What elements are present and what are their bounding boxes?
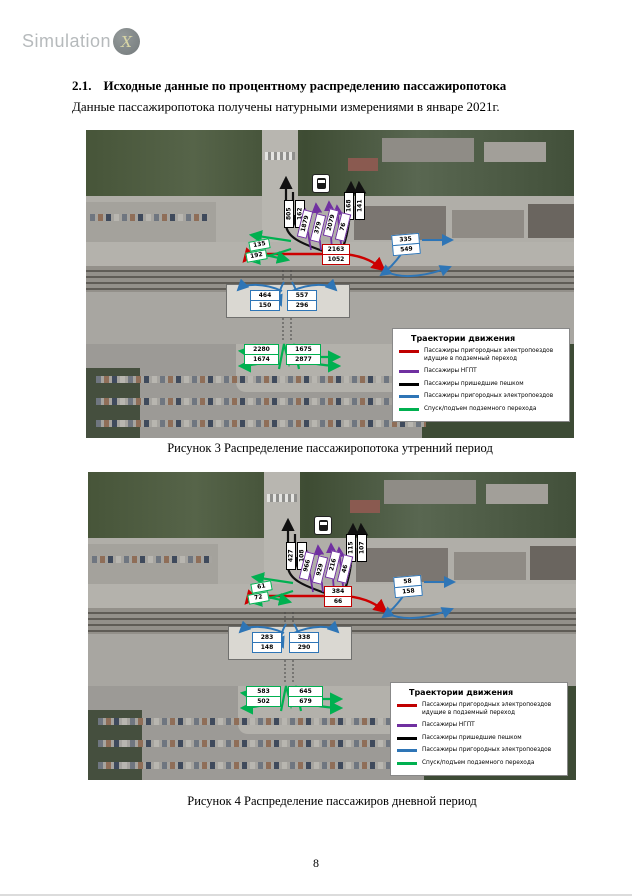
map-parking-upper <box>88 544 218 584</box>
map-building <box>484 142 546 162</box>
trajectory-swatch-blue <box>399 395 419 398</box>
legend: Траектории движения Пассажиры пригородны… <box>390 682 568 776</box>
legend-title: Траектории движения <box>409 688 561 697</box>
aerial-map-morning: 805 162 168 141 1879 379 2079 76 2163 10… <box>86 130 574 438</box>
intro-paragraph: Данные пассажиропотока получены натурным… <box>72 99 582 115</box>
label-pedestrian-west-1: 427 <box>286 542 296 570</box>
label-platform-east: 338 290 <box>289 632 319 653</box>
legend-item: Пассажиры пришедшие пешком <box>397 735 561 743</box>
legend-item: Спуск/подъем подземного перехода <box>399 406 563 414</box>
legend-item: Пассажиры пригородных электропоездов <box>399 393 563 401</box>
map-building <box>348 158 378 171</box>
map-parked-cars <box>92 556 212 563</box>
section-title: Исходные данные по процентному распредел… <box>104 78 507 93</box>
trajectory-swatch-green <box>399 408 419 411</box>
section-number: 2.1. <box>72 78 92 93</box>
trajectory-swatch-black <box>399 383 419 386</box>
section-heading: 2.1.Исходные данные по процентному распр… <box>72 78 577 94</box>
trajectory-swatch-purple <box>399 370 419 373</box>
label-pedestrian-east-2: 141 <box>355 192 365 220</box>
trajectory-swatch-red <box>399 350 419 353</box>
label-platform-east: 557 296 <box>287 290 317 311</box>
map-building <box>350 500 380 513</box>
trajectory-swatch-blue <box>397 749 417 752</box>
map-building <box>452 210 524 238</box>
label-pedestrian-west-1: 805 <box>284 200 294 228</box>
map-building <box>454 552 526 580</box>
bus-icon <box>312 174 330 193</box>
legend-item: Пассажиры пришедшие пешком <box>399 381 563 389</box>
map-building <box>528 204 574 238</box>
caption-figure-3: Рисунок 3 Распределение пассажиропотока … <box>86 441 574 456</box>
label-to-underpass: 384 66 <box>324 586 352 607</box>
map-parked-cars <box>90 214 210 221</box>
label-underpass-west: 2280 1674 <box>244 344 279 365</box>
figure-day: 427 108 115 107 966 929 216 46 384 66 61… <box>88 472 576 780</box>
document-page: Simulation X 2.1.Исходные данные по проц… <box>0 0 632 896</box>
map-crosswalk <box>265 152 295 160</box>
map-crosswalk <box>267 494 297 502</box>
label-platform-west: 283 148 <box>252 632 282 653</box>
label-exit-east: 58 158 <box>393 575 423 598</box>
map-building <box>382 138 474 162</box>
simulationx-logo: Simulation X <box>22 28 140 55</box>
logo-text: Simulation <box>22 31 111 52</box>
map-building <box>486 484 548 504</box>
legend-item: Пассажиры НГПТ <box>399 368 563 376</box>
legend: Траектории движения Пассажиры пригородны… <box>392 328 570 422</box>
page-number: 8 <box>0 856 632 871</box>
trajectory-swatch-red <box>397 704 417 707</box>
label-exit-east: 335 549 <box>391 233 421 256</box>
legend-item: Пассажиры пригородных электропоездов иду… <box>397 702 561 717</box>
legend-title: Траектории движения <box>411 334 563 343</box>
trajectory-swatch-green <box>397 762 417 765</box>
figure-morning: 805 162 168 141 1879 379 2079 76 2163 10… <box>86 130 574 438</box>
map-parking-upper <box>86 202 216 242</box>
map-parked-cars <box>96 376 396 383</box>
legend-item: Пассажиры пригородных электропоездов <box>397 747 561 755</box>
map-trees-top <box>86 130 574 196</box>
trajectory-swatch-purple <box>397 724 417 727</box>
label-underpass-east: 645 679 <box>288 686 323 707</box>
label-underpass-west: 583 502 <box>246 686 281 707</box>
map-parked-cars <box>98 762 428 769</box>
legend-item: Спуск/подъем подземного перехода <box>397 760 561 768</box>
map-parked-cars <box>96 398 416 405</box>
bus-icon <box>314 516 332 535</box>
map-building <box>530 546 576 580</box>
label-platform-west: 464 150 <box>250 290 280 311</box>
map-building <box>384 480 476 504</box>
map-parked-cars <box>98 718 398 725</box>
logo-x-icon: X <box>113 28 140 55</box>
legend-item: Пассажиры пригородных электропоездов иду… <box>399 348 563 363</box>
label-pedestrian-east-2: 107 <box>357 534 367 562</box>
legend-item: Пассажиры НГПТ <box>397 722 561 730</box>
caption-figure-4: Рисунок 4 Распределение пассажиров дневн… <box>88 794 576 809</box>
label-underpass-east: 1675 2877 <box>286 344 321 365</box>
trajectory-swatch-black <box>397 737 417 740</box>
map-parked-cars <box>96 420 426 427</box>
label-to-underpass: 2163 1052 <box>322 244 350 265</box>
aerial-map-day: 427 108 115 107 966 929 216 46 384 66 61… <box>88 472 576 780</box>
map-trees-top <box>88 472 576 538</box>
map-parked-cars <box>98 740 418 747</box>
